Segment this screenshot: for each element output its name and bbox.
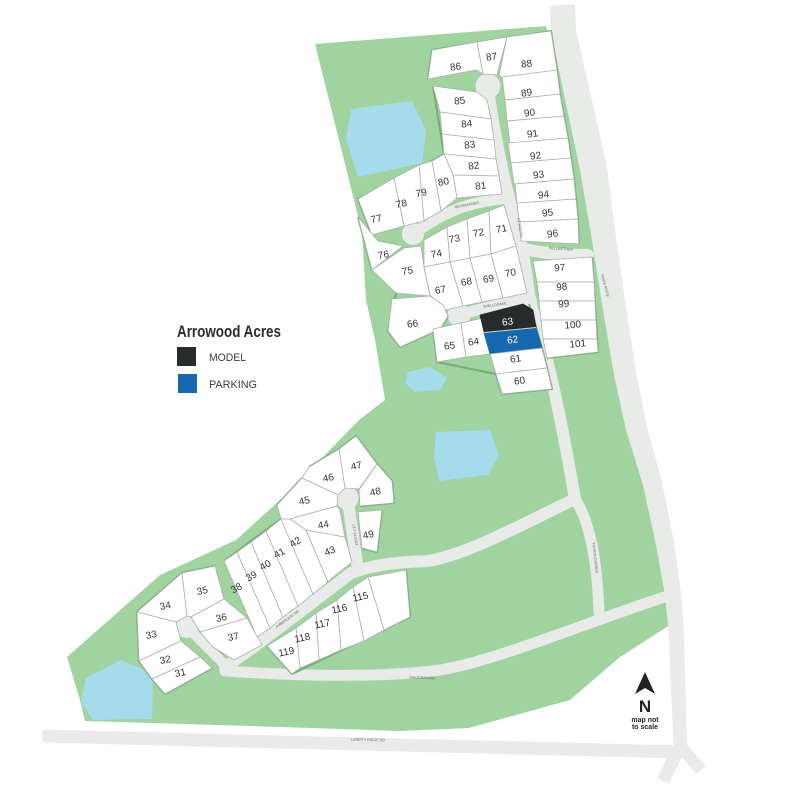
svg-text:99: 99 (558, 299, 570, 311)
svg-text:92: 92 (529, 150, 542, 163)
svg-text:94: 94 (537, 189, 550, 202)
svg-text:66: 66 (406, 318, 419, 331)
svg-text:83: 83 (464, 139, 477, 151)
svg-text:97: 97 (554, 263, 566, 275)
svg-text:91: 91 (526, 128, 539, 141)
svg-text:81: 81 (475, 180, 488, 192)
svg-text:98: 98 (556, 282, 568, 294)
svg-text:61: 61 (509, 353, 522, 366)
svg-text:89: 89 (520, 87, 533, 100)
svg-text:65: 65 (443, 340, 456, 353)
svg-text:82: 82 (468, 160, 481, 172)
svg-text:MODEL: MODEL (209, 352, 246, 364)
svg-text:85: 85 (454, 95, 467, 107)
svg-text:64: 64 (467, 336, 480, 349)
svg-text:Arrowood Acres: Arrowood Acres (177, 323, 281, 341)
svg-text:95: 95 (541, 207, 554, 220)
svg-text:87: 87 (485, 51, 498, 64)
svg-text:63: 63 (501, 316, 514, 329)
svg-text:map not: map not (631, 717, 659, 724)
svg-text:100: 100 (564, 319, 582, 331)
svg-text:LIBERTY RIDGE RD: LIBERTY RIDGE RD (351, 738, 385, 743)
svg-text:86: 86 (449, 61, 462, 74)
svg-text:PARKING: PARKING (209, 379, 257, 391)
svg-text:N: N (639, 697, 651, 716)
svg-text:88: 88 (520, 58, 533, 71)
svg-text:90: 90 (523, 107, 536, 120)
svg-text:96: 96 (546, 228, 559, 241)
svg-text:84: 84 (461, 118, 474, 130)
svg-text:62: 62 (506, 334, 519, 347)
svg-text:to scale: to scale (632, 724, 658, 731)
svg-text:93: 93 (532, 169, 545, 182)
svg-text:101: 101 (569, 338, 587, 350)
svg-text:60: 60 (513, 375, 526, 388)
